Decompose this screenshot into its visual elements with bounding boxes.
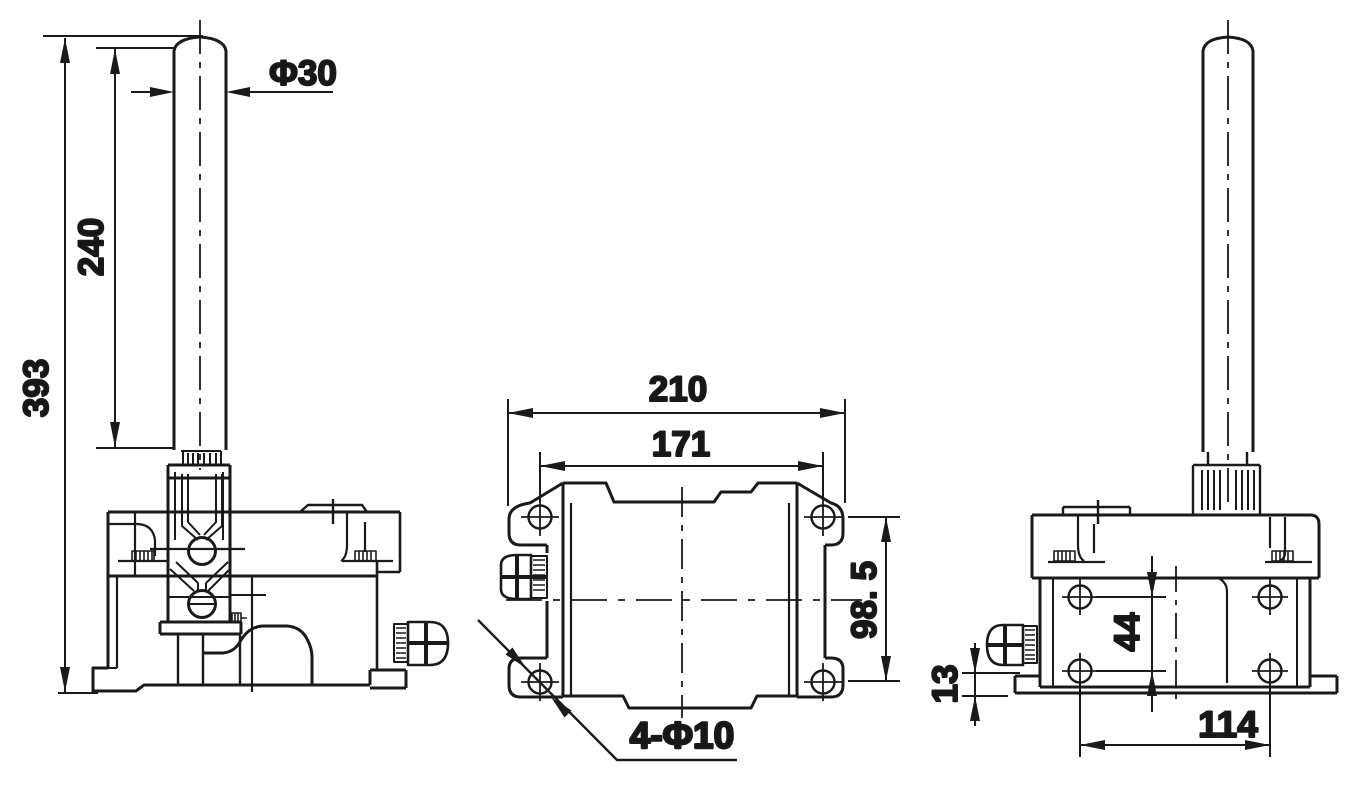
front-view: 393 240 Φ30 xyxy=(17,20,448,693)
side-rod xyxy=(1203,20,1253,503)
engineering-drawing: 393 240 Φ30 xyxy=(0,0,1346,793)
dim-label-114: 114 xyxy=(1198,704,1258,745)
dim-label-4-dia10: 4-Φ10 xyxy=(630,715,734,756)
front-rod xyxy=(174,20,226,470)
housing-screw-icon xyxy=(230,613,247,622)
side-mounting-holes xyxy=(1062,579,1288,689)
mounting-hole-icon xyxy=(1252,579,1288,615)
dimension-rod-length: 240 xyxy=(72,48,174,448)
dim-label-44: 44 xyxy=(1108,612,1147,651)
top-plate-outline xyxy=(509,483,843,708)
dim-label-171: 171 xyxy=(652,425,710,464)
dim-label-210: 210 xyxy=(649,370,707,409)
arrow-up-icon xyxy=(110,49,120,74)
dimension-hole-pitch-horizontal: 114 xyxy=(1080,679,1270,757)
arrow-up-icon xyxy=(1147,671,1157,696)
arrow-left-icon xyxy=(540,461,565,471)
arrow-right-icon xyxy=(150,87,174,97)
front-left-screw-icon xyxy=(132,551,154,561)
side-left-screw-icon xyxy=(1054,551,1075,561)
dim-label-13: 13 xyxy=(926,665,965,704)
arrow-down-icon xyxy=(110,422,120,447)
arrow-up-icon xyxy=(60,38,70,63)
front-rod-coupling xyxy=(181,451,221,465)
arrow-up-icon xyxy=(970,696,980,721)
roller-upper-icon xyxy=(189,538,216,565)
arrow-left-icon xyxy=(1080,740,1105,750)
side-cable-gland-icon xyxy=(987,625,1037,665)
arrow-left-icon xyxy=(508,408,533,418)
arrow-right-icon xyxy=(820,408,845,418)
arrow-left-icon xyxy=(226,87,250,97)
front-cable-gland-icon xyxy=(394,622,448,665)
arrow-down-icon xyxy=(60,667,70,692)
arrow-down-icon xyxy=(970,648,980,673)
arrow-right-icon xyxy=(798,461,823,471)
side-view: 44 13 114 xyxy=(926,20,1337,757)
top-centerlines xyxy=(506,487,862,718)
dim-label-393: 393 xyxy=(17,359,56,417)
arrow-down-icon xyxy=(881,656,891,681)
arrow-up-icon xyxy=(881,517,891,542)
top-view: 210 171 98. 5 4-Φ10 xyxy=(478,370,900,760)
dim-label-dia30: Φ30 xyxy=(269,54,337,93)
top-cable-gland-icon xyxy=(501,555,547,599)
side-rod-coupling xyxy=(1193,465,1260,515)
drawing-canvas: 393 240 Φ30 xyxy=(0,0,1346,793)
dimension-rod-diameter: Φ30 xyxy=(131,54,337,97)
dimension-hole-pitch-depth: 98. 5 xyxy=(845,517,900,681)
callout-mounting-holes: 4-Φ10 xyxy=(478,620,737,760)
arrow-down-icon xyxy=(1147,572,1157,597)
dim-label-98-5: 98. 5 xyxy=(845,561,884,639)
mounting-hole-icon xyxy=(1062,579,1098,615)
arrow-leader-icon xyxy=(551,697,572,718)
dim-label-240: 240 xyxy=(72,218,111,276)
front-body xyxy=(93,499,448,692)
front-right-screw-icon xyxy=(355,551,376,561)
